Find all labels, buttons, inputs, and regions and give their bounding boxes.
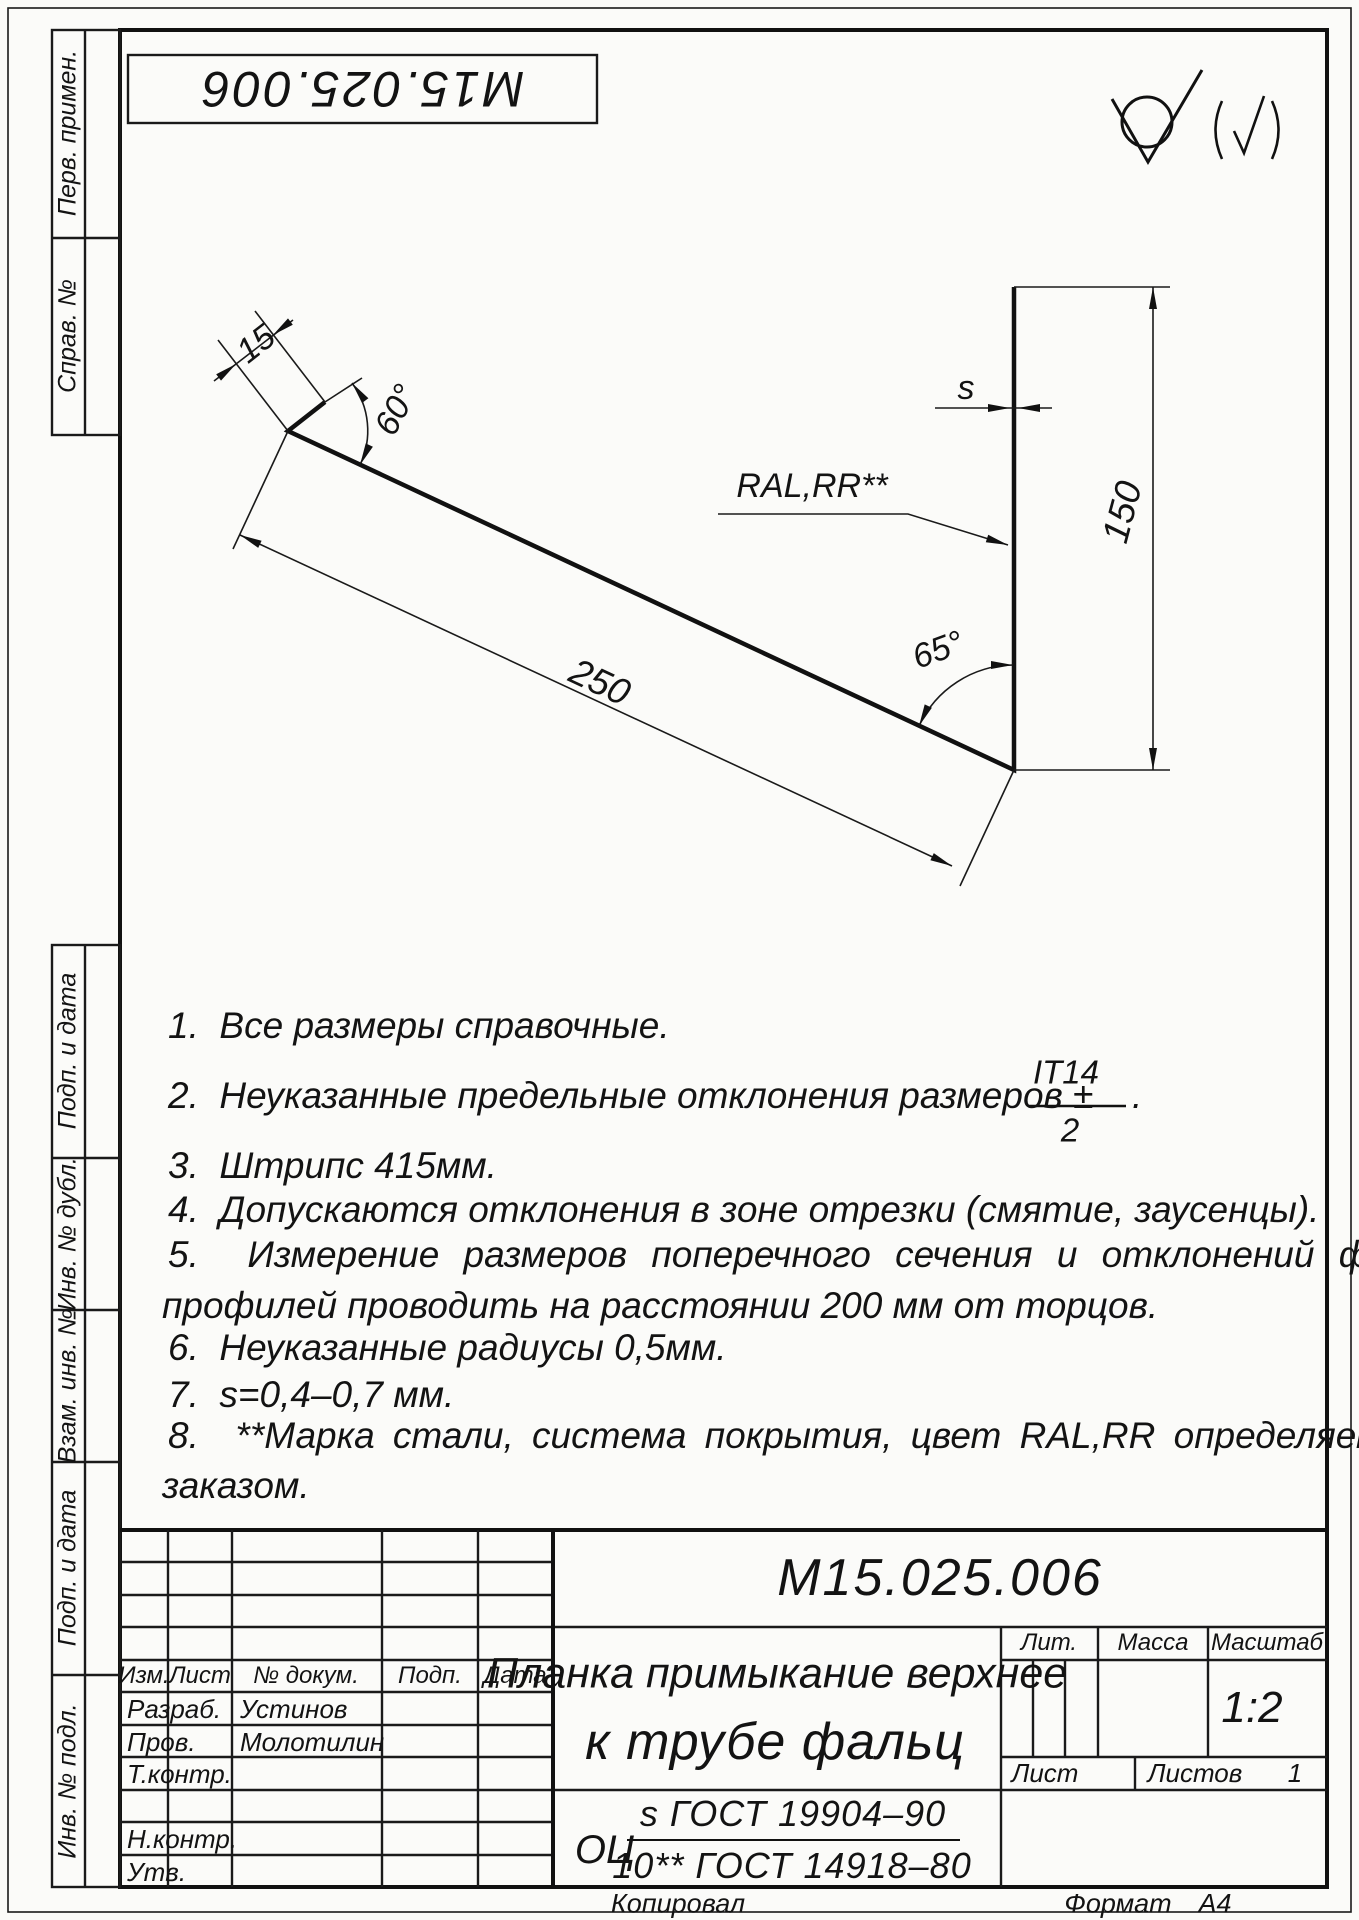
material-denominator: 10** ГОСТ 14918–80	[612, 1848, 971, 1884]
row-label-tkontr: Т.контр.	[127, 1761, 232, 1787]
checker-name: Молотилин	[240, 1729, 384, 1755]
part-profile	[288, 287, 1014, 770]
surface-finish-paren-icon	[1216, 96, 1279, 159]
row-label-razrab: Разраб.	[127, 1696, 221, 1722]
note-1: 1. Все размеры справочные.	[168, 1007, 670, 1044]
part-name-line1: Планка примыкание верхнее	[487, 1653, 1067, 1696]
row-label-prov: Пров.	[127, 1729, 196, 1755]
row-label-utv: Утв.	[127, 1859, 186, 1885]
scale-value: 1:2	[1221, 1686, 1282, 1730]
margin-label-sprav-no: Справ. №	[56, 279, 81, 393]
note-2-period: .	[1132, 1077, 1142, 1114]
col-header-dokum: № докум.	[253, 1664, 359, 1688]
margin-label-podp-data-1: Подп. и дата	[56, 973, 81, 1130]
note-8-line2: заказом.	[162, 1467, 310, 1504]
titleblock-designation: М15.025.006	[777, 1552, 1103, 1604]
coating-leader-label: RAL,RR**	[736, 469, 887, 503]
note-2-frac-numerator: IT14	[1033, 1056, 1099, 1089]
margin-label-inv-podl: Инв. № подл.	[56, 1703, 81, 1858]
note-6: 6. Неуказанные радиусы 0,5мм.	[168, 1329, 727, 1366]
row-label-nkontr: Н.контр.	[127, 1826, 237, 1852]
margin-label-inv-dubl: Инв. № дубл.	[56, 1157, 81, 1311]
note-2-text: 2. Неуказанные предельные отклонения раз…	[168, 1077, 1093, 1114]
note-4: 4. Допускаются отклонения в зоне отрезки…	[168, 1191, 1319, 1228]
header-masshtab: Масштаб	[1211, 1631, 1323, 1655]
margin-label-perv-primen: Перв. примен.	[56, 50, 81, 216]
col-header-izm: Изм.	[118, 1664, 169, 1688]
note-2-frac-denominator: 2	[1061, 1114, 1079, 1147]
drawing-sheet: М15.025.006 Перв. примен. Справ. № Подп.…	[0, 0, 1359, 1920]
footer-kopiroval: Копировал	[611, 1891, 745, 1918]
margin-label-vzam-inv: Взам. инв. №	[56, 1309, 81, 1464]
footer-format-value: А4	[1198, 1891, 1231, 1918]
note-8-line1: 8. **Марка стали, система покрытия, цвет…	[168, 1417, 1359, 1454]
header-lit: Лит.	[1021, 1631, 1077, 1655]
note-5-line2: профилей проводить на расстоянии 200 мм …	[162, 1287, 1158, 1324]
note-5-line1: 5. Измерение размеров поперечного сечени…	[168, 1236, 1359, 1273]
header-massa: Масса	[1118, 1631, 1189, 1655]
frame-border	[120, 30, 1327, 1887]
label-listov: Листов	[1148, 1760, 1243, 1786]
listov-value: 1	[1288, 1760, 1302, 1786]
part-name-line2: к трубе фальц	[585, 1716, 965, 1768]
dim-label-s: s	[958, 371, 975, 405]
material-numerator: s ГОСТ 19904–90	[640, 1796, 946, 1832]
margin-label-podp-data-2: Подп. и дата	[56, 1490, 81, 1647]
col-header-data: Дата	[483, 1664, 546, 1688]
col-header-podp: Подп.	[398, 1664, 462, 1688]
top-stamp-designation: М15.025.006	[200, 64, 525, 114]
footer-format: Формат	[1064, 1891, 1171, 1918]
developer-name: Устинов	[240, 1696, 348, 1722]
col-header-list: Лист	[169, 1664, 231, 1688]
dimension-lines	[214, 287, 1170, 886]
surface-finish-icon	[1112, 70, 1202, 162]
note-3: 3. Штрипс 415мм.	[168, 1147, 497, 1184]
note-7: 7. s=0,4–0,7 мм.	[168, 1376, 454, 1413]
label-list: Лист	[1012, 1760, 1079, 1786]
